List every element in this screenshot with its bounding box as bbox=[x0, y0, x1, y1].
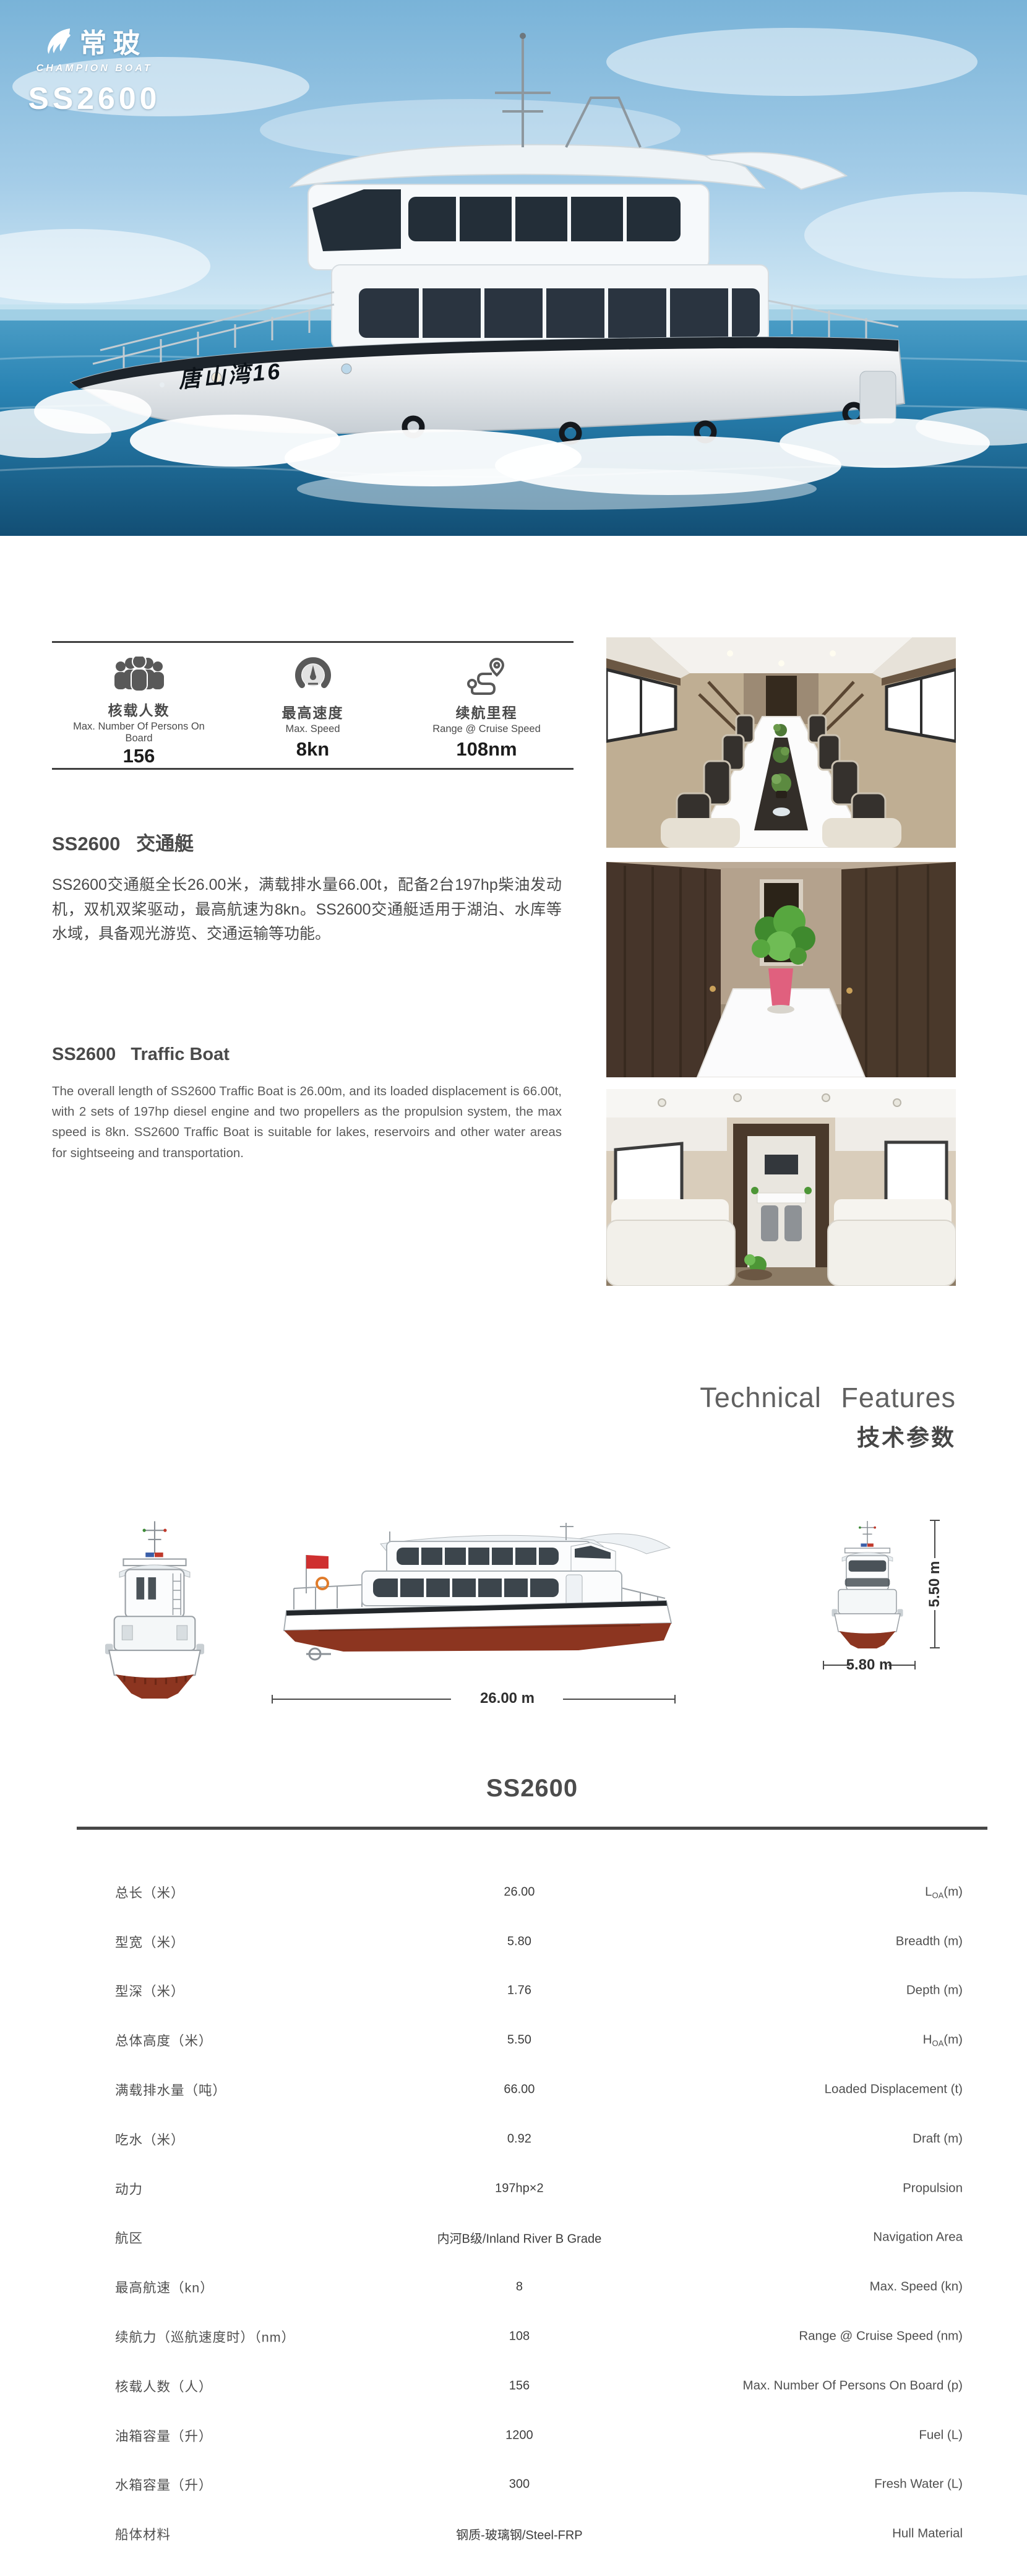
spec-row-en: Loaded Displacement (t) bbox=[825, 2082, 963, 2098]
spec-en-pre: Fuel (L) bbox=[919, 2427, 963, 2442]
quick-spec-title-en: Range @ Cruise Speed bbox=[432, 723, 541, 735]
spec-table-rows: 总长（米） 26.00 LOA(m) 型宽（米） 5.80 Breadth (m… bbox=[77, 1867, 987, 2559]
spec-table-title: SS2600 bbox=[77, 1775, 987, 1803]
loa-dim-tick-right bbox=[674, 1695, 676, 1704]
beam-dim-tick-left bbox=[823, 1661, 824, 1669]
quick-spec-value: 156 bbox=[123, 745, 155, 767]
spec-table-row: 型宽（米） 5.80 Breadth (m) bbox=[77, 1917, 987, 1966]
spec-table-row: 型深（米） 1.76 Depth (m) bbox=[77, 1966, 987, 2016]
spec-table-row: 吃水（米） 0.92 Draft (m) bbox=[77, 2114, 987, 2164]
spec-row-en: LOA(m) bbox=[925, 1884, 963, 1900]
intro-section-en: SS2600 Traffic Boat The overall length o… bbox=[52, 1045, 562, 1163]
spec-row-cn: 总长（米） bbox=[115, 1882, 185, 1902]
spec-en-post: (m) bbox=[943, 1884, 963, 1898]
technical-features-title-en: Technical Features bbox=[700, 1382, 956, 1414]
spec-table-row: 总体高度（米） 5.50 HOA(m) bbox=[77, 2015, 987, 2065]
hoa-dim-label: 5.50 m bbox=[926, 1553, 943, 1615]
spec-row-cn: 型深（米） bbox=[115, 1981, 185, 2001]
spec-row-cn: 核载人数（人） bbox=[115, 2376, 213, 2395]
spec-row-cn: 满载排水量（吨） bbox=[115, 2080, 226, 2100]
spec-row-en: Fuel (L) bbox=[919, 2427, 963, 2443]
spec-row-value: 66.00 bbox=[504, 2083, 535, 2097]
quick-spec-title-en: Max. Speed bbox=[285, 723, 340, 735]
spec-table-rule bbox=[77, 1827, 987, 1830]
spec-row-en: HOA(m) bbox=[923, 2033, 963, 2048]
passengers-icon bbox=[107, 657, 171, 694]
hoa-dim-line-bottom bbox=[934, 1610, 935, 1648]
beam-dim-tick-right bbox=[914, 1661, 916, 1669]
spec-row-cn: 续航力（巡航速度时）（nm） bbox=[115, 2327, 295, 2346]
spec-row-cn: 最高航速（kn） bbox=[115, 2278, 214, 2297]
technical-features-title-cn: 技术参数 bbox=[700, 1419, 956, 1452]
spec-en-sub: OA bbox=[932, 1890, 943, 1900]
spec-en-pre: Hull Material bbox=[892, 2526, 963, 2541]
interior-photo-cabin-corridor bbox=[606, 862, 956, 1077]
intro-title-en: SS2600 Traffic Boat bbox=[52, 1045, 562, 1065]
spec-en-pre: Depth (m) bbox=[906, 1983, 963, 1997]
spec-table-row: 续航力（巡航速度时）（nm） 108 Range @ Cruise Speed … bbox=[77, 2312, 987, 2361]
quick-spec-title-cn: 最高速度 bbox=[282, 701, 344, 722]
spec-en-pre: Breadth (m) bbox=[896, 1934, 963, 1948]
spec-row-value: 1200 bbox=[505, 2428, 533, 2442]
spec-table-row: 最高航速（kn） 8 Max. Speed (kn) bbox=[77, 2262, 987, 2312]
brochure-page: 常玻 CHAMPION BOAT SS2600 唐山湾16 核载人数 Max. … bbox=[0, 0, 1027, 2576]
spec-row-en: Hull Material bbox=[892, 2526, 963, 2542]
spec-row-en: Navigation Area bbox=[873, 2230, 963, 2246]
spec-row-en: Range @ Cruise Speed (nm) bbox=[799, 2329, 963, 2345]
quick-spec-range: 续航里程 Range @ Cruise Speed 108nm bbox=[400, 643, 574, 768]
hoa-dim-line-top bbox=[934, 1520, 935, 1558]
spec-en-pre: Max. Number Of Persons On Board (p) bbox=[743, 2378, 963, 2392]
spec-en-pre: Max. Speed (kn) bbox=[870, 2280, 963, 2294]
route-icon bbox=[465, 657, 509, 696]
spec-row-cn: 油箱容量（升） bbox=[115, 2426, 213, 2445]
spec-row-en: Max. Number Of Persons On Board (p) bbox=[743, 2378, 963, 2393]
spec-row-value: 内河B级/Inland River B Grade bbox=[437, 2229, 602, 2247]
brand-logo: 常玻 CHAMPION BOAT SS2600 bbox=[12, 21, 176, 116]
spec-row-value: 钢质-玻璃钢/Steel-FRP bbox=[456, 2525, 582, 2543]
quick-spec-title-cn: 核载人数 bbox=[108, 699, 170, 720]
beam-dim-label: 5.80 m bbox=[841, 1656, 897, 1674]
feather-logo-icon bbox=[43, 25, 75, 57]
spec-table-row: 核载人数（人） 156 Max. Number Of Persons On Bo… bbox=[77, 2361, 987, 2411]
spec-row-value: 5.50 bbox=[507, 2033, 531, 2048]
spec-row-cn: 动力 bbox=[115, 2179, 143, 2198]
spec-row-value: 197hp×2 bbox=[495, 2181, 543, 2195]
spec-row-value: 300 bbox=[509, 2478, 530, 2492]
spec-row-cn: 船体材料 bbox=[115, 2525, 171, 2544]
spec-row-cn: 吃水（米） bbox=[115, 2129, 185, 2148]
interior-photo-lounge bbox=[606, 1089, 956, 1286]
loa-dim-line-left bbox=[272, 1699, 451, 1700]
quick-spec-value: 8kn bbox=[296, 738, 329, 760]
spec-row-cn: 型宽（米） bbox=[115, 1932, 185, 1951]
loa-dim-line-right bbox=[563, 1699, 676, 1700]
spec-row-value: 26.00 bbox=[504, 1885, 535, 1899]
spec-en-pre: Fresh Water (L) bbox=[874, 2477, 963, 2491]
spec-en-pre: Propulsion bbox=[903, 2181, 963, 2195]
speedometer-icon bbox=[293, 657, 333, 696]
quick-spec-value: 108nm bbox=[456, 738, 517, 760]
spec-en-pre: Navigation Area bbox=[873, 2230, 963, 2244]
spec-row-cn: 水箱容量（升） bbox=[115, 2475, 213, 2494]
spec-row-en: Draft (m) bbox=[913, 2131, 963, 2147]
drawing-bow-view-small bbox=[820, 1517, 914, 1652]
spec-row-value: 1.76 bbox=[507, 1984, 531, 1998]
spec-en-pre: H bbox=[923, 2033, 932, 2047]
spec-table-row: 满载排水量（吨） 66.00 Loaded Displacement (t) bbox=[77, 2065, 987, 2114]
spec-table-row: 航区 内河B级/Inland River B Grade Navigation … bbox=[77, 2213, 987, 2263]
spec-row-en: Breadth (m) bbox=[896, 1934, 963, 1949]
hoa-dim-tick-bottom bbox=[930, 1647, 940, 1648]
spec-en-pre: Loaded Displacement (t) bbox=[825, 2082, 963, 2096]
quick-spec-speed: 最高速度 Max. Speed 8kn bbox=[226, 643, 400, 768]
spec-en-post: (m) bbox=[943, 2033, 963, 2047]
spec-row-en: Max. Speed (kn) bbox=[870, 2280, 963, 2295]
brand-name-cn: 常玻 bbox=[80, 21, 147, 61]
spec-row-cn: 总体高度（米） bbox=[115, 2031, 213, 2050]
spec-table-row: 总长（米） 26.00 LOA(m) bbox=[77, 1867, 987, 1917]
spec-row-value: 5.80 bbox=[507, 1934, 531, 1949]
spec-row-value: 0.92 bbox=[507, 2132, 531, 2146]
quick-spec-title-en: Max. Number Of Persons On Board bbox=[65, 721, 213, 745]
spec-row-en: Depth (m) bbox=[906, 1983, 963, 1999]
technical-features-header: Technical Features 技术参数 bbox=[700, 1382, 956, 1452]
spec-row-value: 8 bbox=[516, 2280, 523, 2294]
drawing-bow-view-large bbox=[84, 1516, 226, 1702]
spec-en-sub: OA bbox=[932, 2039, 943, 2048]
quick-spec-passengers: 核载人数 Max. Number Of Persons On Board 156 bbox=[52, 643, 226, 768]
spec-en-pre: Draft (m) bbox=[913, 2131, 963, 2145]
brand-name-en: CHAMPION BOAT bbox=[12, 63, 176, 74]
spec-row-cn: 航区 bbox=[115, 2228, 143, 2247]
spec-table-row: 动力 197hp×2 Propulsion bbox=[77, 2164, 987, 2213]
hero-section: 常玻 CHAMPION BOAT SS2600 唐山湾16 bbox=[0, 0, 1027, 536]
hero-model-title: SS2600 bbox=[12, 80, 176, 116]
intro-section-cn: SS2600 交通艇 SS2600交通艇全长26.00米，满载排水量66.00t… bbox=[52, 828, 562, 947]
spec-table-row: 油箱容量（升） 1200 Fuel (L) bbox=[77, 2411, 987, 2460]
spec-table-row: 船体材料 钢质-玻璃钢/Steel-FRP Hull Material bbox=[77, 2509, 987, 2559]
spec-row-en: Fresh Water (L) bbox=[874, 2477, 963, 2492]
spec-en-pre: L bbox=[925, 1884, 932, 1898]
spec-row-value: 108 bbox=[509, 2330, 530, 2344]
hoa-dim-tick-top bbox=[930, 1520, 940, 1521]
intro-body-en: The overall length of SS2600 Traffic Boa… bbox=[52, 1081, 562, 1163]
loa-dim-label: 26.00 m bbox=[452, 1690, 563, 1707]
intro-title-cn: SS2600 交通艇 bbox=[52, 828, 562, 856]
spec-row-en: Propulsion bbox=[903, 2181, 963, 2196]
spec-table-row: 水箱容量（升） 300 Fresh Water (L) bbox=[77, 2460, 987, 2510]
quick-spec-strip: 核载人数 Max. Number Of Persons On Board 156… bbox=[52, 641, 574, 770]
spec-row-value: 156 bbox=[509, 2379, 530, 2393]
intro-body-cn: SS2600交通艇全长26.00米，满载排水量66.00t，配备2台197hp柴… bbox=[52, 873, 562, 947]
drawing-side-view bbox=[269, 1519, 677, 1683]
loa-dim-tick-left bbox=[272, 1695, 273, 1704]
quick-spec-title-cn: 续航里程 bbox=[456, 701, 518, 722]
interior-photo-conference-room bbox=[606, 637, 956, 848]
spec-en-pre: Range @ Cruise Speed (nm) bbox=[799, 2329, 963, 2343]
